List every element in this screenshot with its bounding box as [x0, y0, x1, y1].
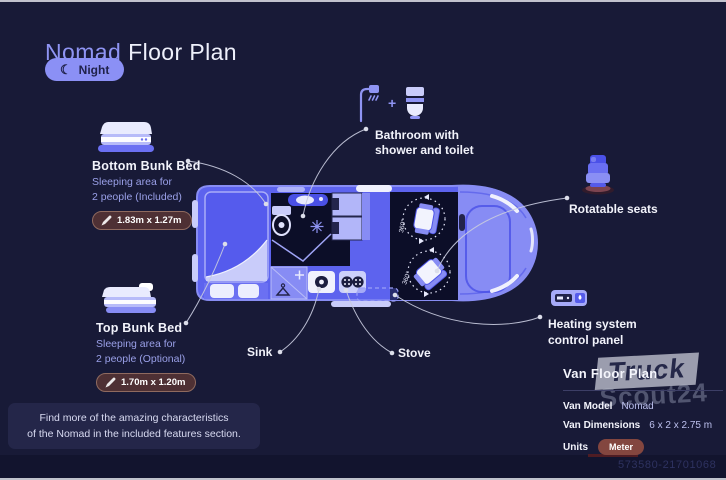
top-bunk-bed-icon [102, 283, 158, 315]
night-mode-toggle[interactable]: ☾ Night [45, 58, 124, 81]
units-badge[interactable]: Meter [598, 439, 644, 455]
bottom-bunk-desc: Sleeping area for 2 people (Included) [92, 175, 232, 205]
bathroom-label: Bathroom with shower and toilet [375, 128, 482, 159]
van-cabinets [332, 193, 370, 240]
night-label: Night [79, 63, 110, 77]
info-panel-divider [563, 390, 723, 391]
toilet-icon [403, 86, 427, 120]
features-note: Find more of the amazing characteristics… [8, 403, 260, 449]
van-cab [458, 186, 537, 301]
heating-unit-zone [357, 288, 398, 301]
pencil-icon [105, 377, 116, 388]
van-toilet [272, 206, 291, 215]
top-bunk-title: Top Bunk Bed [96, 321, 236, 335]
sink-label: Sink [247, 345, 272, 359]
van-sink-unit [308, 271, 335, 293]
rotatable-seat-icon [578, 153, 618, 195]
heating-label: Heating system control panel [548, 317, 637, 348]
bottom-bunk-title: Bottom Bunk Bed [92, 159, 232, 173]
van-floorplan: 360° 360° [192, 185, 537, 307]
top-bunk-desc: Sleeping area for 2 people (Optional) [96, 337, 236, 367]
floor-plan-infographic: 360° 360° [0, 0, 726, 480]
van-info-panel: Van Floor Plan Van Model Nomad Van Dimen… [563, 366, 723, 463]
heating-panel-icon [551, 290, 587, 307]
heating-callout: Heating system control panel [548, 290, 637, 348]
van-dimensions-row: Van Dimensions 6 x 2 x 2.75 m [563, 420, 723, 431]
van-window [356, 185, 392, 192]
rotatable-seats-label: Rotatable seats [569, 202, 658, 216]
van-model-row: Van Model Nomad [563, 401, 723, 412]
rotatable-seats-callout: Rotatable seats [570, 153, 658, 216]
van-step [331, 301, 391, 307]
van-seating-area: 360° 360° [390, 192, 458, 300]
pillow [238, 284, 259, 298]
bottom-bunk-callout: Bottom Bunk Bed Sleeping area for 2 peop… [92, 120, 232, 231]
bathroom-callout: + Bathroom with shower and toilet [352, 83, 482, 159]
bottom-bunk-dimensions-badge: 1.83m x 1.27m [92, 211, 192, 230]
top-bunk-dimensions-badge: 1.70m x 1.20m [96, 373, 196, 392]
top-bunk-callout: Top Bunk Bed Sleeping area for 2 people … [96, 283, 236, 393]
shower-icon [354, 83, 381, 123]
info-panel-title: Van Floor Plan [563, 366, 723, 381]
plus-icon: + [388, 95, 396, 111]
moon-icon: ☾ [60, 63, 72, 76]
pencil-icon [101, 215, 112, 226]
stove-label: Stove [398, 346, 431, 360]
rear-door-handle [192, 254, 198, 282]
title-rest: Floor Plan [128, 39, 237, 65]
van-wardrobe [271, 267, 307, 299]
units-row: Units Meter [563, 439, 723, 455]
steering-wheel [459, 214, 465, 231]
bottom-bunk-bed-icon [98, 120, 154, 153]
